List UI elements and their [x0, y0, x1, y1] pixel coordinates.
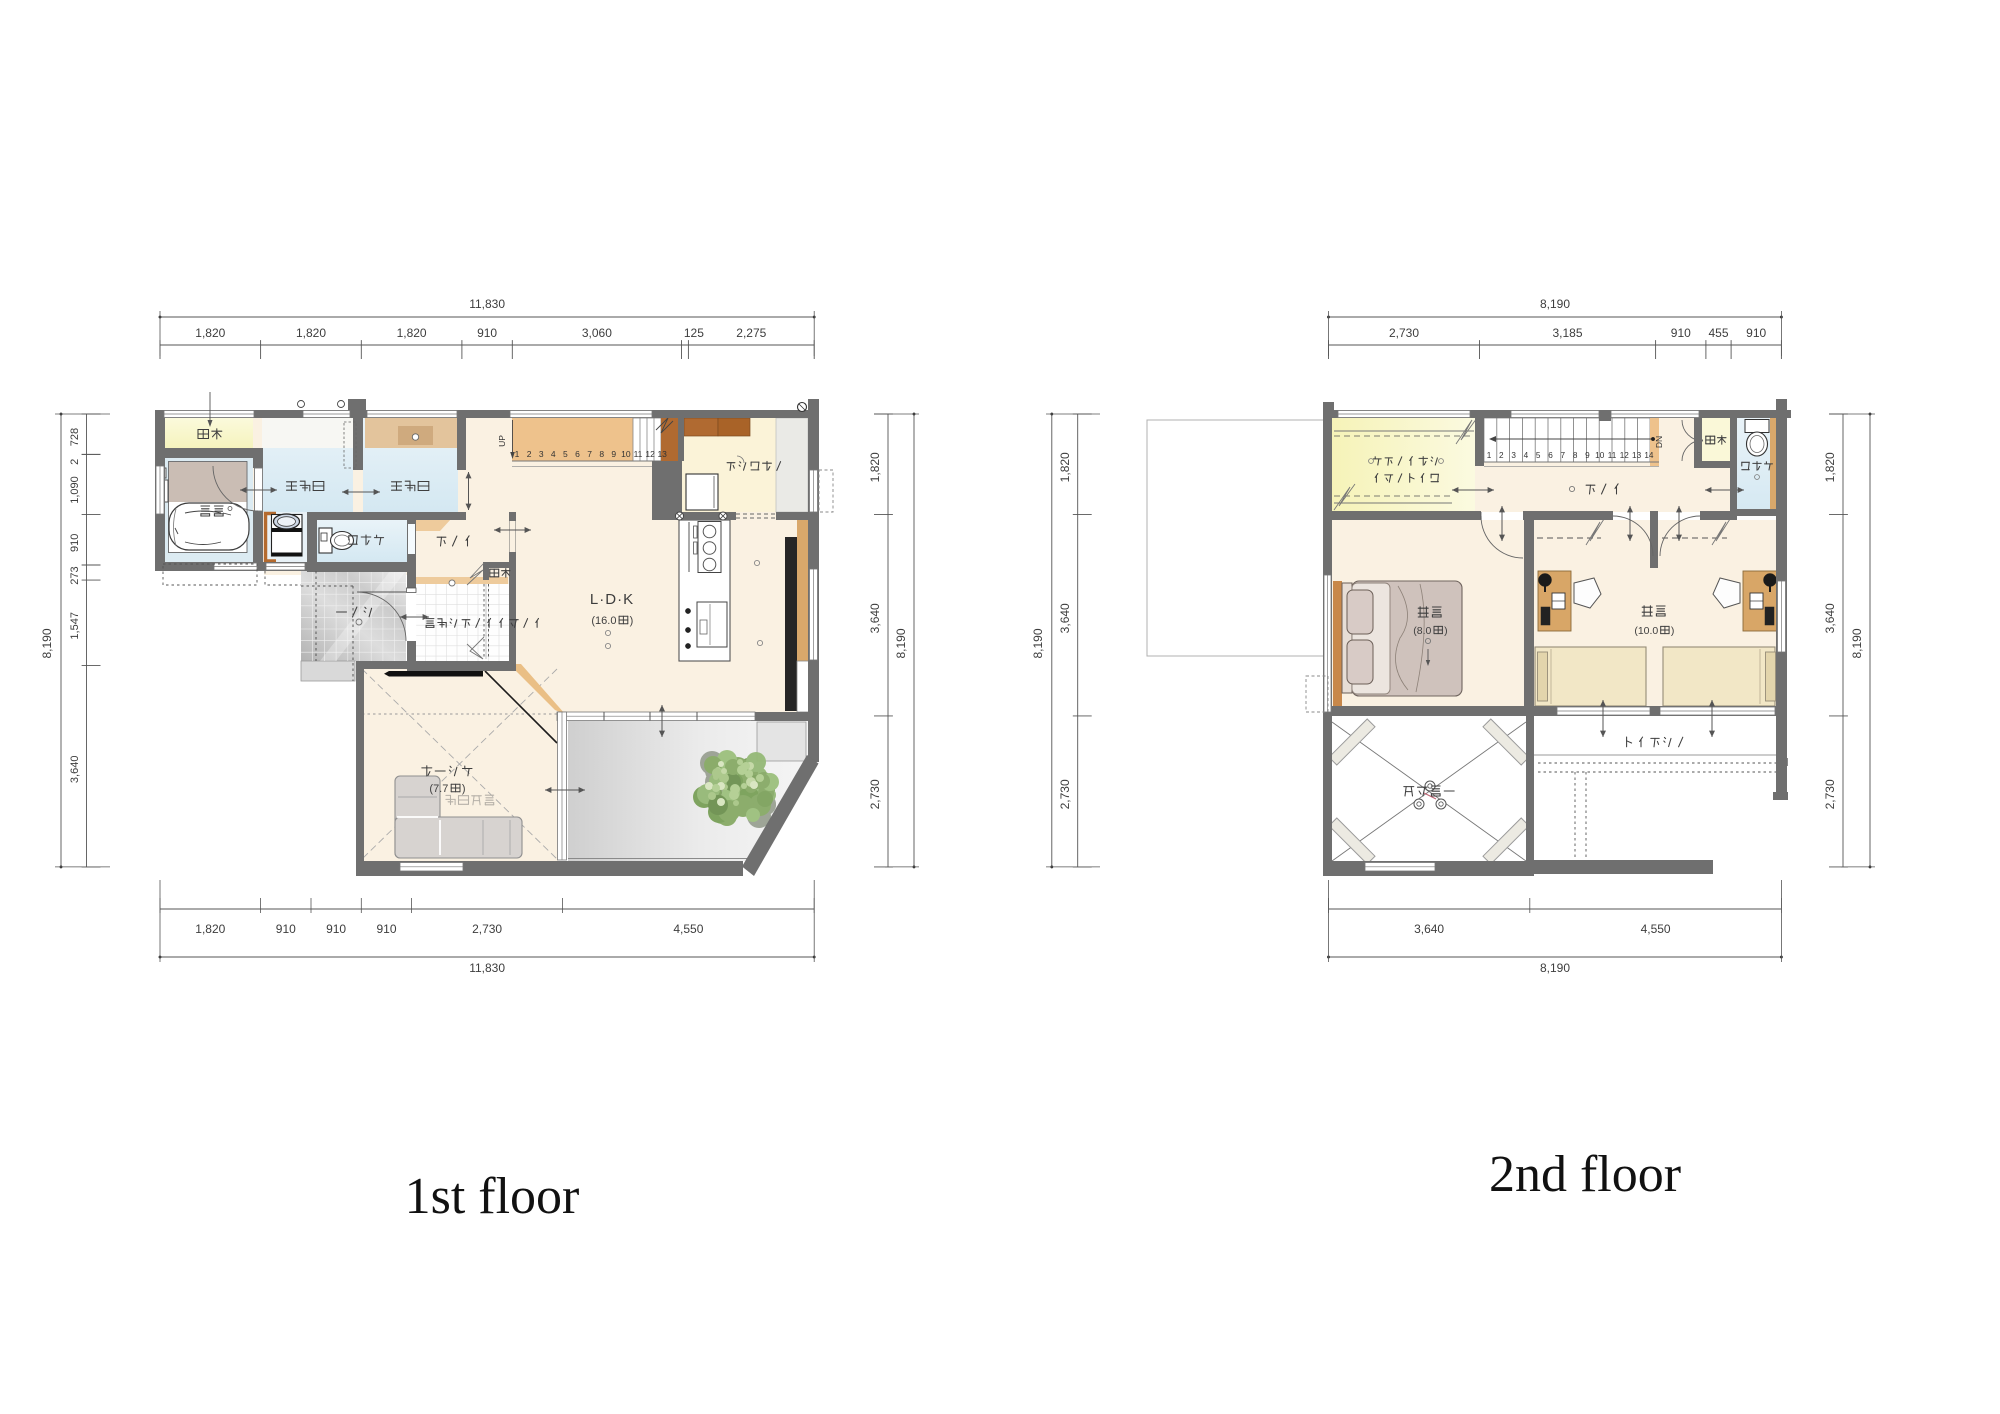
svg-text:UP: UP [497, 435, 507, 447]
svg-text:(16.0: (16.0 [591, 615, 616, 627]
svg-text:910: 910 [477, 326, 497, 340]
svg-text:3,185: 3,185 [1552, 326, 1582, 340]
svg-text:910: 910 [69, 534, 81, 552]
svg-text:3,640: 3,640 [1823, 603, 1837, 633]
svg-text:8,190: 8,190 [40, 628, 54, 658]
svg-text:(7.7: (7.7 [429, 783, 448, 795]
svg-text:): ) [1444, 625, 1448, 637]
svg-text:5: 5 [1536, 451, 1541, 460]
svg-text:2,730: 2,730 [1058, 779, 1072, 809]
svg-text:3: 3 [1511, 451, 1516, 460]
svg-text:11: 11 [1608, 451, 1617, 460]
svg-text:3: 3 [539, 449, 544, 459]
svg-text:): ) [462, 783, 466, 795]
svg-text:2,730: 2,730 [1823, 779, 1837, 809]
svg-text:3,640: 3,640 [69, 756, 81, 784]
svg-text:8,190: 8,190 [894, 628, 908, 658]
svg-text:8,190: 8,190 [1540, 961, 1570, 975]
svg-text:2nd floor: 2nd floor [1489, 1146, 1681, 1203]
svg-text:455: 455 [1708, 326, 1728, 340]
svg-text:910: 910 [1746, 326, 1766, 340]
svg-text:1,820: 1,820 [195, 326, 225, 340]
svg-text:): ) [1671, 625, 1675, 637]
svg-text:6: 6 [575, 449, 580, 459]
svg-text:DN: DN [1654, 436, 1664, 448]
svg-text:125: 125 [684, 326, 704, 340]
svg-text:13: 13 [657, 449, 667, 459]
svg-text:13: 13 [1632, 451, 1642, 460]
svg-text:1,547: 1,547 [69, 612, 81, 640]
svg-text:10: 10 [1595, 451, 1605, 460]
svg-text:11,830: 11,830 [469, 961, 505, 975]
svg-text:L·D·K: L·D·K [590, 591, 634, 608]
svg-text:1,090: 1,090 [69, 476, 81, 504]
svg-text:8,190: 8,190 [1540, 297, 1570, 311]
svg-text:910: 910 [326, 922, 346, 936]
svg-text:2,730: 2,730 [1389, 326, 1419, 340]
svg-text:4: 4 [1524, 451, 1529, 460]
svg-text:12: 12 [1620, 451, 1630, 460]
svg-text:): ) [630, 615, 634, 627]
svg-text:1: 1 [515, 449, 520, 459]
svg-text:5: 5 [563, 449, 568, 459]
svg-text:8,190: 8,190 [1850, 628, 1864, 658]
svg-text:1,820: 1,820 [195, 922, 225, 936]
svg-text:1,820: 1,820 [296, 326, 326, 340]
svg-text:2: 2 [69, 459, 81, 465]
svg-text:910: 910 [276, 922, 296, 936]
svg-text:728: 728 [69, 428, 81, 446]
svg-text:7: 7 [1561, 451, 1566, 460]
svg-text:(8.0: (8.0 [1413, 625, 1431, 637]
svg-text:1st floor: 1st floor [405, 1168, 580, 1225]
svg-text:3,640: 3,640 [868, 603, 882, 633]
svg-text:2,730: 2,730 [868, 779, 882, 809]
svg-text:10: 10 [621, 449, 631, 459]
svg-text:4,550: 4,550 [673, 922, 703, 936]
svg-text:14: 14 [1644, 451, 1654, 460]
svg-text:6: 6 [1548, 451, 1553, 460]
svg-text:3,640: 3,640 [1058, 603, 1072, 633]
svg-text:273: 273 [69, 566, 81, 584]
svg-text:8: 8 [599, 449, 604, 459]
svg-text:(10.0: (10.0 [1634, 625, 1658, 637]
svg-text:3,640: 3,640 [1414, 922, 1444, 936]
svg-text:8,190: 8,190 [1031, 628, 1045, 658]
svg-text:2: 2 [1499, 451, 1504, 460]
svg-text:7: 7 [587, 449, 592, 459]
svg-text:11: 11 [634, 449, 643, 459]
svg-text:4,550: 4,550 [1641, 922, 1671, 936]
svg-text:910: 910 [376, 922, 396, 936]
svg-text:12: 12 [645, 449, 655, 459]
svg-text:1,820: 1,820 [397, 326, 427, 340]
svg-text:8: 8 [1573, 451, 1578, 460]
svg-text:1,820: 1,820 [1823, 452, 1837, 482]
svg-text:9: 9 [611, 449, 616, 459]
svg-text:2,275: 2,275 [736, 326, 766, 340]
svg-text:11,830: 11,830 [469, 297, 505, 311]
svg-text:3,060: 3,060 [582, 326, 612, 340]
svg-text:4: 4 [551, 449, 556, 459]
svg-text:2,730: 2,730 [472, 922, 502, 936]
svg-text:2: 2 [527, 449, 532, 459]
svg-text:910: 910 [1671, 326, 1691, 340]
svg-text:1,820: 1,820 [868, 452, 882, 482]
svg-text:9: 9 [1585, 451, 1590, 460]
svg-text:1,820: 1,820 [1058, 452, 1072, 482]
svg-text:1: 1 [1487, 451, 1492, 460]
